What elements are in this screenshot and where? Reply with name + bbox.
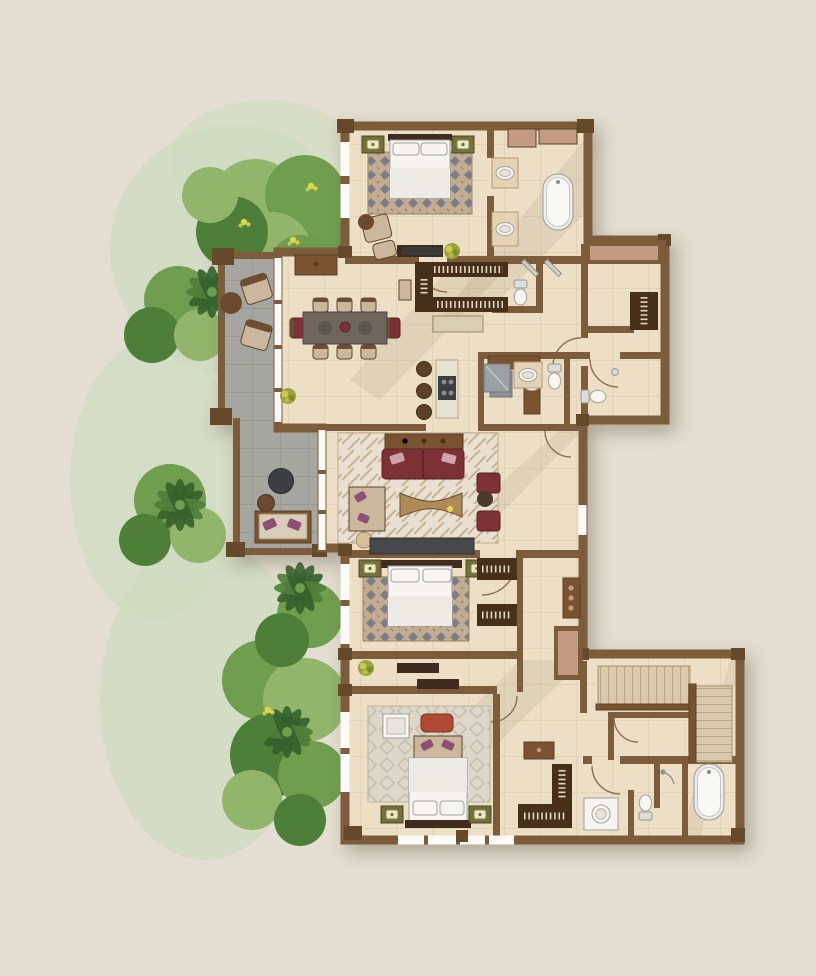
terrace-pouf-small <box>258 495 275 512</box>
tv-shelf <box>402 247 442 255</box>
corner-post <box>338 648 352 660</box>
toilet <box>548 364 561 389</box>
glass-wall-living <box>319 430 326 550</box>
bar-stool <box>417 362 432 377</box>
toilet <box>639 795 652 820</box>
wall-segment <box>322 424 426 431</box>
wall-segment <box>345 651 523 659</box>
side-table <box>477 491 493 507</box>
sink <box>496 223 514 236</box>
corner-post <box>337 119 354 133</box>
floor-plan-canvas <box>0 0 816 976</box>
place-setting <box>358 321 372 335</box>
wall-segment <box>493 694 500 840</box>
corner-post <box>338 684 352 696</box>
corner-post <box>338 246 352 258</box>
dining-armchair <box>386 318 400 338</box>
wall-segment <box>564 352 570 429</box>
terrace-loveseat <box>255 511 311 543</box>
corner-post <box>731 828 745 842</box>
wall-segment <box>654 764 660 808</box>
burner <box>442 391 447 396</box>
window <box>341 564 350 600</box>
window <box>341 712 350 748</box>
living-room <box>338 433 500 554</box>
toilet-paper-holder <box>612 369 619 376</box>
dining-chair <box>337 298 352 312</box>
burner <box>449 391 454 396</box>
foot-bench <box>414 736 462 759</box>
pillow <box>413 801 437 815</box>
chaise-armchair <box>349 487 385 531</box>
sink <box>496 167 514 180</box>
console-decor <box>314 262 319 267</box>
dining-chair <box>361 345 376 359</box>
terrace-border <box>233 548 325 555</box>
console-knob <box>568 595 573 600</box>
table-decor <box>447 506 453 512</box>
wall-segment <box>478 356 484 428</box>
bathtub <box>694 764 724 820</box>
pillow <box>421 143 447 155</box>
corridor-console <box>397 663 439 673</box>
wall-segment <box>478 424 583 431</box>
bar-stool <box>417 405 432 420</box>
dining-chair <box>313 298 328 312</box>
sink-basin <box>596 809 606 819</box>
mullion <box>485 836 489 845</box>
potted-plant <box>444 243 460 259</box>
ottoman <box>477 473 500 493</box>
stair-treads <box>598 666 690 704</box>
window <box>341 142 350 176</box>
terrace-pouf-large <box>269 469 294 494</box>
bed-blanket <box>388 596 452 626</box>
mullion <box>275 388 282 392</box>
place-setting <box>318 321 332 335</box>
corner-post <box>456 830 468 842</box>
closet-bench <box>433 316 483 332</box>
mullion <box>319 510 326 514</box>
nightstand-lamp <box>469 806 491 823</box>
terrace-post <box>210 408 232 425</box>
ottoman <box>477 511 500 531</box>
corner-post <box>344 826 362 840</box>
nightstand-lamp <box>381 806 403 823</box>
potted-plant <box>280 388 296 404</box>
burner <box>442 380 447 385</box>
window <box>341 754 350 792</box>
wall-segment <box>682 760 688 840</box>
bed-blanket <box>409 758 467 792</box>
wall-segment <box>628 790 634 840</box>
bench-red-cushion <box>421 714 453 732</box>
bathtub <box>543 174 573 230</box>
corner-post <box>731 648 745 660</box>
dining-chair <box>337 345 352 359</box>
dining-chair <box>361 298 376 312</box>
toilet <box>514 280 527 305</box>
pillow <box>440 801 464 815</box>
window <box>341 184 350 218</box>
pillow <box>391 569 419 582</box>
sink <box>519 369 537 382</box>
terrace-post <box>212 248 234 265</box>
bed-headboard <box>405 820 471 828</box>
nightstand-lamp <box>359 560 381 577</box>
terrace-border <box>233 418 240 556</box>
wall-segment <box>608 718 614 760</box>
mullion <box>319 470 326 474</box>
mullion <box>275 345 282 349</box>
wall-segment <box>583 756 592 764</box>
bedroom-bottom <box>368 706 491 828</box>
wall-niche <box>508 129 536 147</box>
stair-rail <box>596 704 696 710</box>
nightstand-lamp <box>452 136 474 153</box>
cooktop <box>438 376 456 400</box>
burner <box>449 380 454 385</box>
mullion <box>424 836 428 845</box>
potted-plant <box>358 660 374 676</box>
media-console <box>370 538 474 554</box>
bar-stool <box>417 384 432 399</box>
entry-porch <box>590 246 658 260</box>
pillow <box>393 143 419 155</box>
console-decor <box>440 438 445 443</box>
window <box>579 505 587 535</box>
dining-armchair <box>290 318 304 338</box>
nightstand-lamp <box>362 136 384 153</box>
luggage-rack <box>399 280 411 300</box>
mullion <box>275 300 282 304</box>
wall-segment <box>588 326 634 333</box>
toilet <box>581 390 606 403</box>
wall-niche <box>539 129 577 144</box>
terrace-round-table <box>220 292 242 314</box>
side-porch <box>558 631 578 675</box>
console-knob <box>568 605 573 610</box>
wall-segment <box>516 550 583 558</box>
corner-post <box>577 119 594 133</box>
dining-chair <box>313 345 328 359</box>
floor-plan-svg <box>0 0 816 976</box>
stair-treads <box>696 686 732 762</box>
corner-post <box>338 544 352 556</box>
console-knob <box>568 585 573 590</box>
wall-segment <box>517 558 523 632</box>
console-decor <box>421 438 426 443</box>
terrace-border <box>218 252 225 424</box>
pillow <box>423 569 451 582</box>
wall-segment <box>620 352 665 359</box>
console-decor <box>402 438 407 443</box>
armchair-cushion <box>387 718 405 734</box>
centerpiece <box>340 322 350 332</box>
terrace-post <box>226 542 245 557</box>
wall-segment <box>517 632 523 692</box>
drawer-knob <box>537 748 541 752</box>
stair-rail <box>689 684 696 762</box>
bed-blanket <box>390 168 450 198</box>
corridor-console <box>417 679 459 689</box>
side-table <box>358 214 374 230</box>
wall-segment <box>608 712 696 718</box>
corner-post <box>576 414 589 426</box>
wall-segment <box>536 260 543 312</box>
window <box>341 606 350 644</box>
wall-segment <box>487 130 494 158</box>
